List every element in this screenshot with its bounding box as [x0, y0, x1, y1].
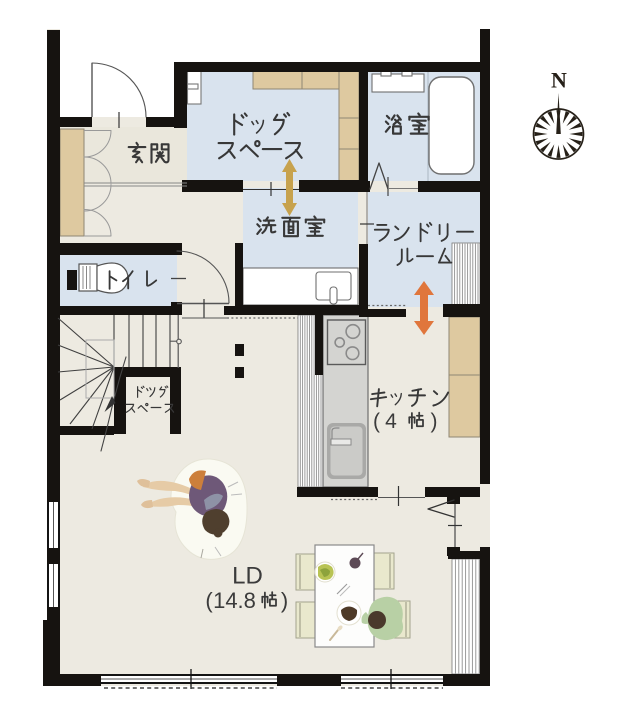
svg-text:LD: LD	[232, 563, 263, 590]
svg-text:N: N	[551, 68, 567, 93]
svg-text:): )	[281, 588, 288, 613]
svg-text:14.8: 14.8	[213, 588, 256, 613]
svg-text:(: (	[373, 410, 380, 433]
svg-text:): )	[431, 410, 438, 433]
svg-text:4: 4	[385, 410, 397, 433]
